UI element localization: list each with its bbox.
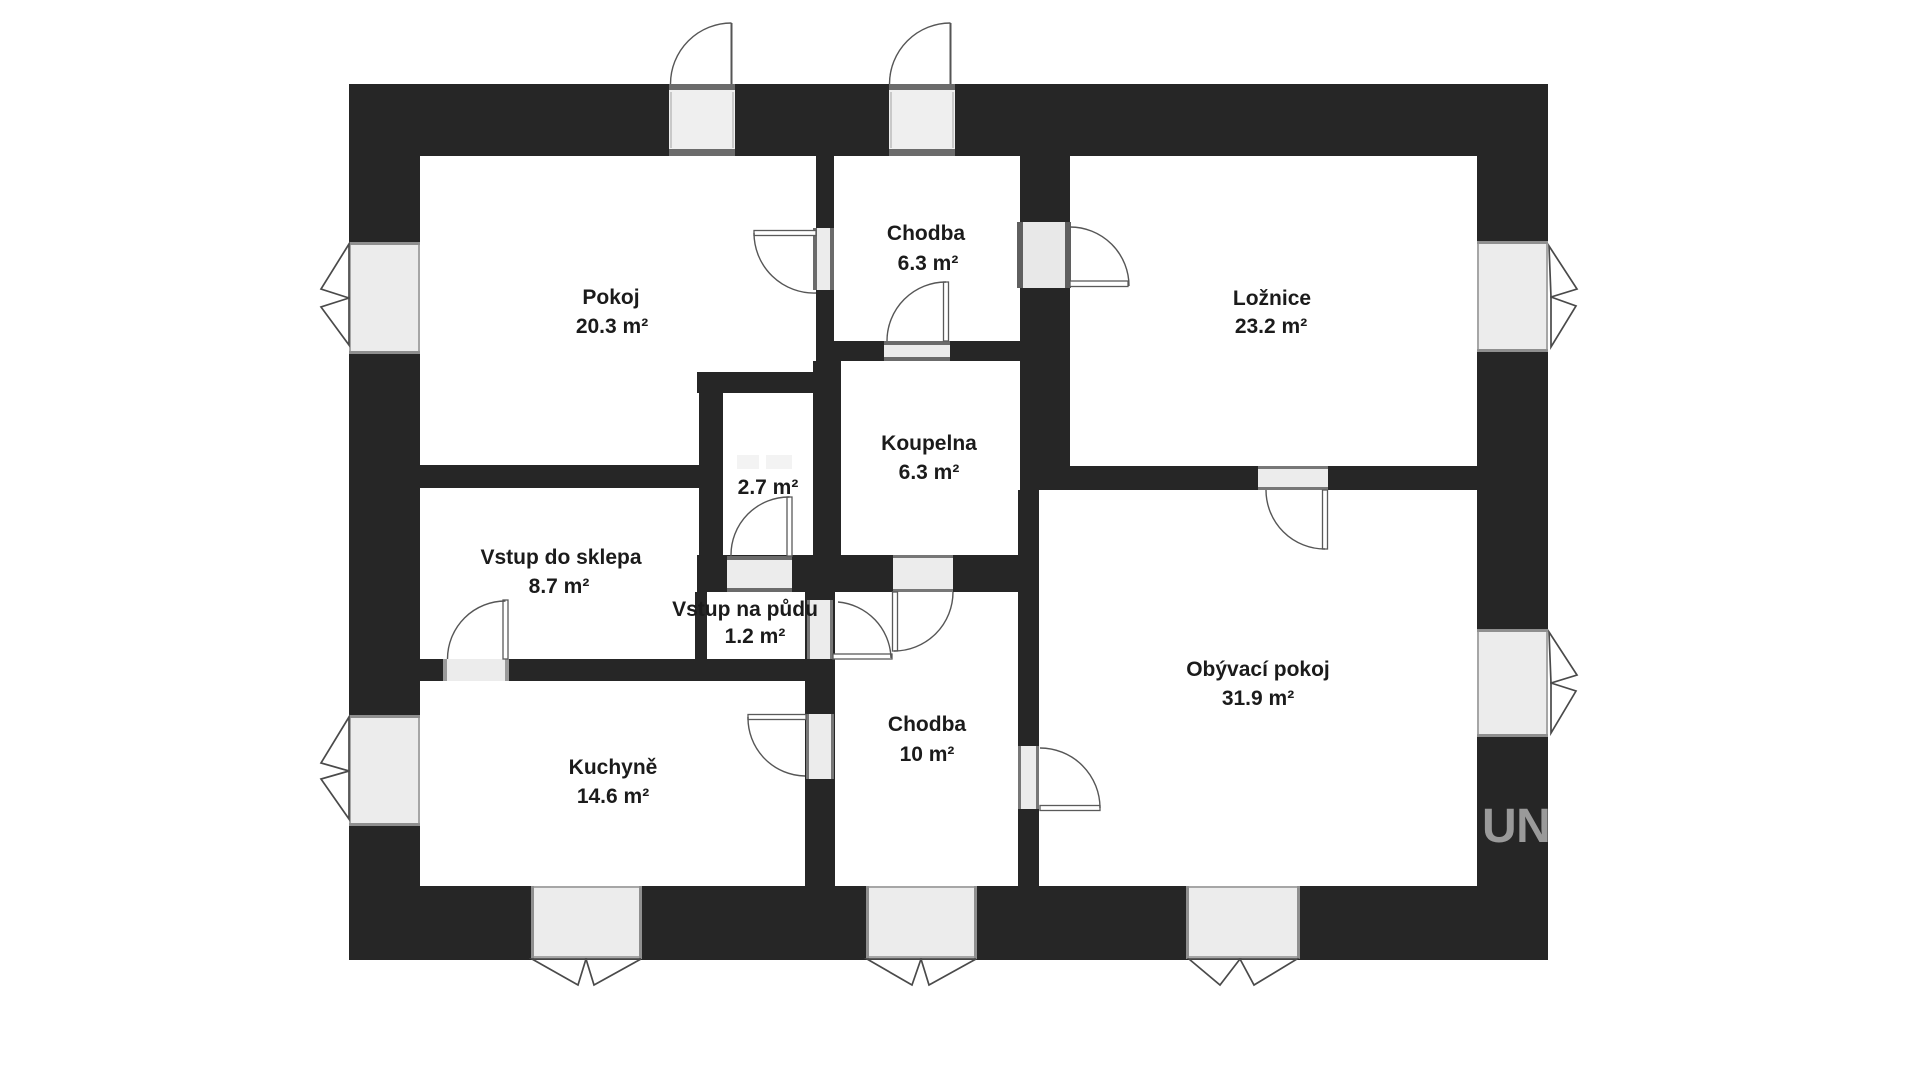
svg-text:Chodba: Chodba bbox=[888, 713, 966, 736]
svg-text:2.7 m²: 2.7 m² bbox=[738, 476, 799, 499]
svg-text:23.2 m²: 23.2 m² bbox=[1235, 315, 1307, 338]
svg-text:Vstup na půdu: Vstup na půdu bbox=[672, 598, 818, 621]
svg-text:8.7 m²: 8.7 m² bbox=[529, 575, 590, 598]
svg-text:10 m²: 10 m² bbox=[900, 743, 955, 766]
svg-text:14.6 m²: 14.6 m² bbox=[577, 785, 649, 808]
svg-text:6.3 m²: 6.3 m² bbox=[899, 461, 960, 484]
svg-text:20.3 m²: 20.3 m² bbox=[576, 315, 648, 338]
svg-text:Ložnice: Ložnice bbox=[1233, 287, 1311, 310]
svg-text:Chodba: Chodba bbox=[887, 222, 965, 245]
svg-text:Koupelna: Koupelna bbox=[881, 432, 977, 455]
svg-text:1.2 m²: 1.2 m² bbox=[725, 625, 786, 648]
svg-text:Kuchyně: Kuchyně bbox=[569, 756, 658, 779]
svg-text:6.3 m²: 6.3 m² bbox=[898, 252, 959, 275]
svg-text:UN: UN bbox=[1482, 800, 1550, 853]
svg-text:Pokoj: Pokoj bbox=[582, 286, 639, 309]
svg-text:Vstup do sklepa: Vstup do sklepa bbox=[480, 546, 641, 569]
svg-text:Obývací pokoj: Obývací pokoj bbox=[1186, 658, 1330, 681]
svg-text:31.9 m²: 31.9 m² bbox=[1222, 687, 1294, 710]
